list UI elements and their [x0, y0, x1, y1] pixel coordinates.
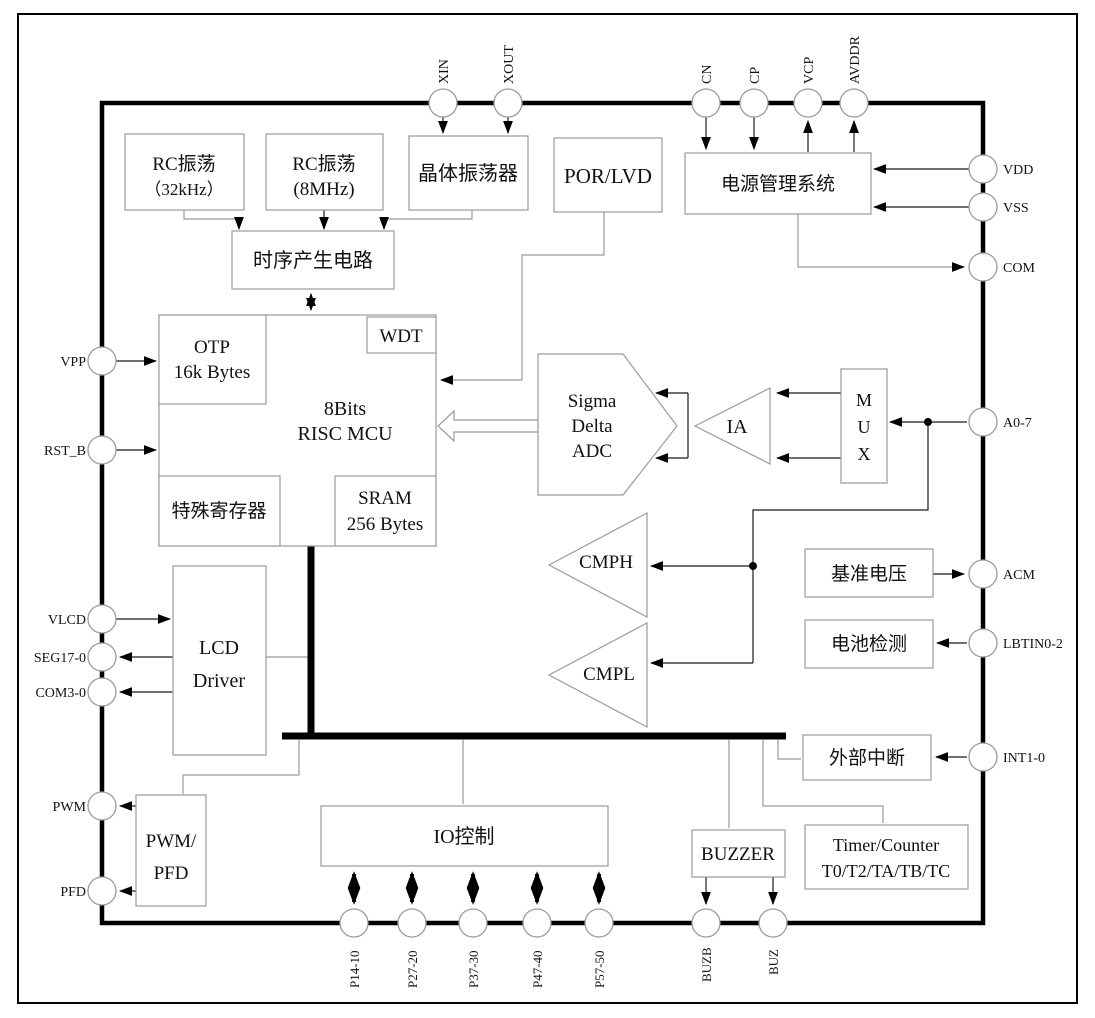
mux-label-1: M: [856, 390, 872, 410]
io-port-arrows: [354, 874, 599, 902]
pin-a0-7: [969, 408, 997, 436]
otp-label-1: OTP: [194, 337, 230, 358]
pin-vss: [969, 193, 997, 221]
mcu-label-1: 8Bits: [324, 398, 366, 420]
pin-rst-b-label: RST_B: [44, 444, 86, 459]
wire-rc32k-to-timing: [184, 208, 239, 229]
otp-label-2: 16k Bytes: [174, 362, 251, 383]
junction-dot-a07: [924, 418, 932, 426]
pin-int1-0: [969, 743, 997, 771]
timer-counter-label-1: Timer/Counter: [833, 835, 939, 855]
buzzer-label: BUZZER: [701, 844, 775, 865]
pin-p57-50-label: P57-50: [592, 950, 607, 988]
pin-com: [969, 253, 997, 281]
pin-xout: [494, 89, 522, 117]
ia-label: IA: [726, 416, 748, 438]
sram-label-2: 256 Bytes: [347, 514, 424, 535]
pwm-pfd-label-2: PFD: [154, 863, 189, 884]
pin-pfd-label: PFD: [60, 885, 86, 900]
wdt-label: WDT: [379, 326, 423, 347]
block-diagram-page: RC振荡 （32kHz） RC振荡 (8MHz) 晶体振荡器 POR/LVD 电…: [0, 0, 1095, 1018]
pin-com-label: COM: [1003, 261, 1035, 276]
adc-label-3: ADC: [572, 441, 612, 462]
pin-xin-label: XIN: [437, 59, 452, 84]
adc-label-2: Delta: [571, 416, 613, 437]
pin-pwm: [88, 792, 116, 820]
pin-vlcd: [88, 605, 116, 633]
pin-lbtin0-2: [969, 629, 997, 657]
pin-cn: [692, 89, 720, 117]
pin-int1-0-label: INT1-0: [1003, 751, 1045, 766]
special-regs-label: 特殊寄存器: [171, 500, 266, 522]
timer-counter-label-2: T0/T2/TA/TB/TC: [822, 861, 951, 881]
pin-buz: [759, 909, 787, 937]
pin-vdd-label: VDD: [1003, 163, 1033, 178]
pin-p37-30-label: P37-30: [466, 950, 481, 988]
pin-p14-10-label: P14-10: [347, 950, 362, 988]
blocks: RC振荡 （32kHz） RC振荡 (8MHz) 晶体振荡器 POR/LVD 电…: [125, 134, 968, 906]
wire-crystal-to-timing: [384, 210, 472, 229]
pin-cp-label: CP: [748, 67, 763, 84]
pin-lbtin0-2-label: LBTIN0-2: [1003, 637, 1063, 652]
pin-xin: [429, 89, 457, 117]
wire-bus-to-ext-interrupt: [778, 740, 801, 759]
pin-rst-b: [88, 436, 116, 464]
pin-pwm-label: PWM: [53, 800, 87, 815]
pin-xout-label: XOUT: [502, 45, 517, 84]
rc-osc-8m-label-1: RC振荡: [292, 153, 355, 175]
block-otp: [159, 315, 266, 404]
pin-com3-0-label: COM3-0: [35, 686, 86, 701]
pin-p14-10: [340, 909, 368, 937]
pin-p47-40-label: P47-40: [530, 950, 545, 988]
crystal-osc-label: 晶体振荡器: [418, 162, 518, 185]
pin-buzb: [692, 909, 720, 937]
pwm-pfd-label-1: PWM/: [146, 831, 197, 852]
pin-avddr-label: AVDDR: [848, 35, 863, 84]
pin-vcp-label: VCP: [802, 57, 817, 84]
pin-buzb-label: BUZB: [699, 947, 714, 982]
pin-avddr: [840, 89, 868, 117]
pin-seg17-0-label: SEG17-0: [34, 651, 86, 666]
timing-gen-label: 时序产生电路: [253, 249, 373, 272]
io-control-label: IO控制: [433, 825, 494, 848]
bus-arrow-adc-to-mcu: [438, 411, 538, 441]
cmpl-label: CMPL: [583, 664, 635, 685]
rc-osc-32k-label-2: （32kHz）: [144, 180, 223, 199]
pin-vss-label: VSS: [1003, 201, 1029, 216]
pin-acm-label: ACM: [1003, 568, 1035, 583]
mux-label-3: X: [858, 444, 871, 464]
pin-pfd: [88, 877, 116, 905]
pin-acm: [969, 560, 997, 588]
por-lvd-label: POR/LVD: [564, 164, 652, 188]
pin-vcp: [794, 89, 822, 117]
power-mgmt-label: 电源管理系统: [721, 173, 835, 195]
pin-vlcd-label: VLCD: [48, 613, 86, 628]
pin-cp: [740, 89, 768, 117]
block-lcd-driver: [173, 566, 266, 755]
pin-p37-30: [459, 909, 487, 937]
ext-interrupt-label: 外部中断: [829, 747, 905, 769]
pin-vpp: [88, 347, 116, 375]
pin-vdd: [969, 155, 997, 183]
pin-p27-20: [398, 909, 426, 937]
pin-buz-label: BUZ: [766, 949, 781, 975]
rc-osc-8m-label-2: (8MHz): [293, 179, 354, 200]
block-sram: [335, 476, 436, 546]
rc-osc-32k-label-1: RC振荡: [152, 153, 215, 175]
pin-com3-0: [88, 678, 116, 706]
pin-a0-7-label: A0-7: [1003, 416, 1032, 431]
vref-label: 基准电压: [831, 563, 907, 585]
pin-cn-label: CN: [700, 65, 715, 84]
wire-power-to-com: [798, 214, 964, 267]
mux-label-2: U: [858, 417, 871, 437]
block-diagram: RC振荡 （32kHz） RC振荡 (8MHz) 晶体振荡器 POR/LVD 电…: [0, 0, 1095, 1018]
battery-detect-label: 电池检测: [831, 633, 907, 655]
lcd-driver-label-1: LCD: [199, 637, 239, 659]
pin-seg17-0: [88, 643, 116, 671]
sram-label-1: SRAM: [358, 488, 412, 509]
pin-vpp-label: VPP: [60, 355, 86, 370]
mcu-label-2: RISC MCU: [297, 423, 393, 445]
lcd-driver-label-2: Driver: [193, 670, 246, 692]
pin-p27-20-label: P27-20: [405, 950, 420, 988]
pin-p57-50: [585, 909, 613, 937]
pin-p47-40: [523, 909, 551, 937]
adc-label-1: Sigma: [568, 391, 617, 412]
junction-dot-cmp: [749, 562, 757, 570]
cmph-label: CMPH: [579, 552, 633, 573]
